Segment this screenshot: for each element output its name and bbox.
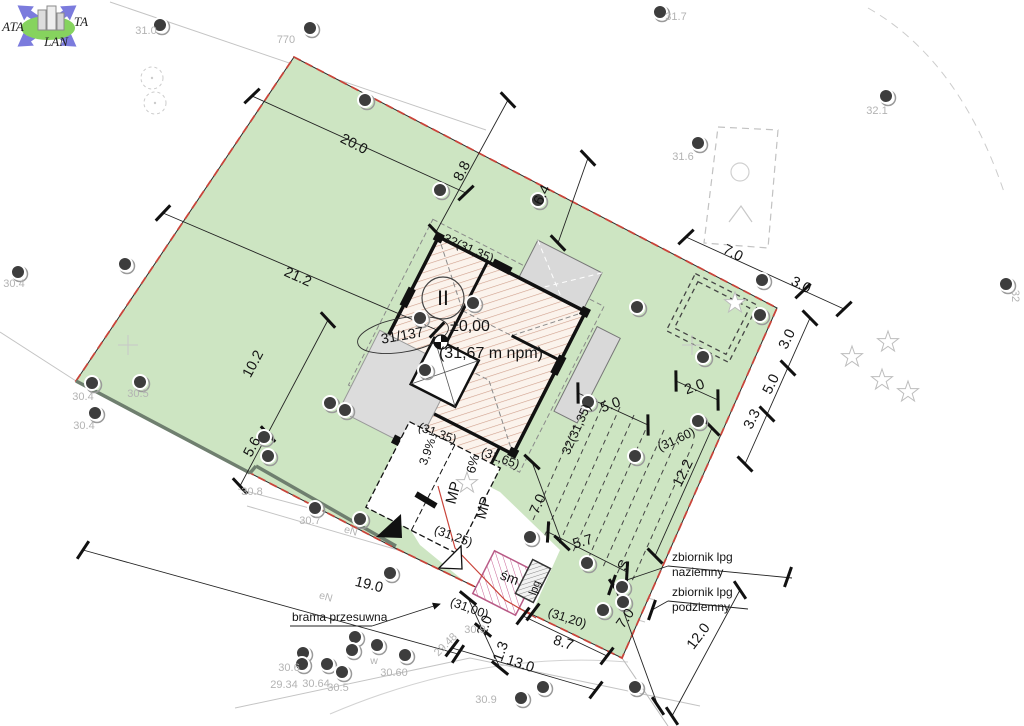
site-plan-svg: 20.021.210.25.68.86.47.03.03.05.03.32.01… [0, 0, 1024, 726]
spot-elevation: 30.8 [241, 486, 262, 498]
spot-elevation: 32 [1009, 290, 1021, 302]
tree-icon [335, 665, 352, 682]
tree-icon [514, 691, 531, 708]
tree-icon [523, 530, 540, 547]
tree-icon [261, 449, 278, 466]
tree-icon [345, 643, 362, 660]
dimension-label: 5.0 [760, 372, 783, 397]
tree-icon [338, 403, 355, 420]
spot-elevation: 29.34 [270, 679, 298, 691]
dimension-label: 8.7 [551, 632, 575, 653]
dimension-label: 19.0 [353, 574, 384, 596]
utility-label: eN [343, 523, 359, 538]
tree-icon [418, 363, 435, 380]
spot-elevation: 31.6 [672, 151, 693, 163]
tree-icon [628, 449, 645, 466]
shrub-icon [878, 331, 899, 351]
spot-elevation: 30.5 [127, 388, 148, 400]
tree-icon [879, 89, 896, 106]
tree-icon [398, 648, 415, 665]
utility-label: w [369, 655, 378, 667]
dimension-label: 3.0 [776, 327, 799, 352]
tree-icon [696, 350, 713, 367]
spot-elevation: 30.7 [299, 515, 320, 527]
tree-icon [628, 680, 645, 697]
logo-text-ata: ATA [1, 19, 24, 34]
company-logo: ATA TA LAN [1, 0, 88, 54]
storey-count: II [437, 287, 449, 310]
tree-icon [358, 93, 375, 110]
tank-below-line2: podziemny [672, 600, 730, 614]
site-plan-drawing: 20.021.210.25.68.86.47.03.03.05.03.32.01… [0, 0, 1024, 726]
tree-ring-icon [144, 92, 166, 114]
tree-icon [370, 638, 387, 655]
tree-icon [118, 257, 135, 274]
tank-below-line1: zbiornik lpg [672, 585, 733, 599]
tree-icon [536, 680, 553, 697]
spot-elevation: 30.60 [380, 667, 408, 679]
spot-elevation: 770 [277, 34, 295, 46]
spot-elevation: 31.0 [135, 25, 156, 37]
tree-icon [580, 556, 597, 573]
tree-icon [303, 21, 320, 38]
spot-elevation: 30.4 [73, 420, 94, 432]
tree-ring-icon [141, 67, 163, 89]
tree-icon [383, 566, 400, 583]
dimension-label: 13.0 [504, 652, 536, 676]
tree-icon [755, 273, 772, 290]
utility-label: eN [318, 589, 334, 604]
spot-elevation: 30.64 [302, 678, 330, 690]
tree-icon [753, 308, 770, 325]
tank-above-line1: zbiornik lpg [672, 550, 733, 564]
tree-icon [320, 657, 337, 674]
sliding-gate-label: brama przesuwna [292, 610, 388, 624]
neighbor-building-outline [704, 127, 778, 248]
spot-elevation: 30.9 [475, 694, 496, 706]
spot-elevation: 30.9 [464, 624, 485, 636]
dimension-label: 7.0 [720, 242, 745, 265]
shrub-icon [898, 381, 919, 401]
shrub-icon [842, 346, 863, 366]
building-level-asl: (31,67 m npm) [439, 345, 543, 362]
tree-icon [466, 296, 483, 313]
spot-elevation: 30.6 [278, 662, 299, 674]
logo-text-ta: TA [74, 14, 88, 29]
logo-buildings-icon [38, 6, 64, 30]
tree-icon [596, 603, 613, 620]
spot-elevation: 30.4 [72, 391, 93, 403]
logo-text-lan: LAN [43, 34, 69, 49]
building-level-zero: ±0,00 [450, 318, 490, 335]
spot-elevation: 30.5 [327, 682, 348, 694]
spot-elevation: 32.1 [866, 105, 887, 117]
tree-icon [691, 414, 708, 431]
spot-elevation: 30.4 [3, 278, 24, 290]
tank-above-line2: naziemny [672, 565, 723, 579]
shrub-icon [872, 369, 893, 389]
tree-icon [433, 183, 450, 200]
spot-elevation: 31.7 [665, 11, 686, 23]
tree-icon [630, 300, 647, 317]
